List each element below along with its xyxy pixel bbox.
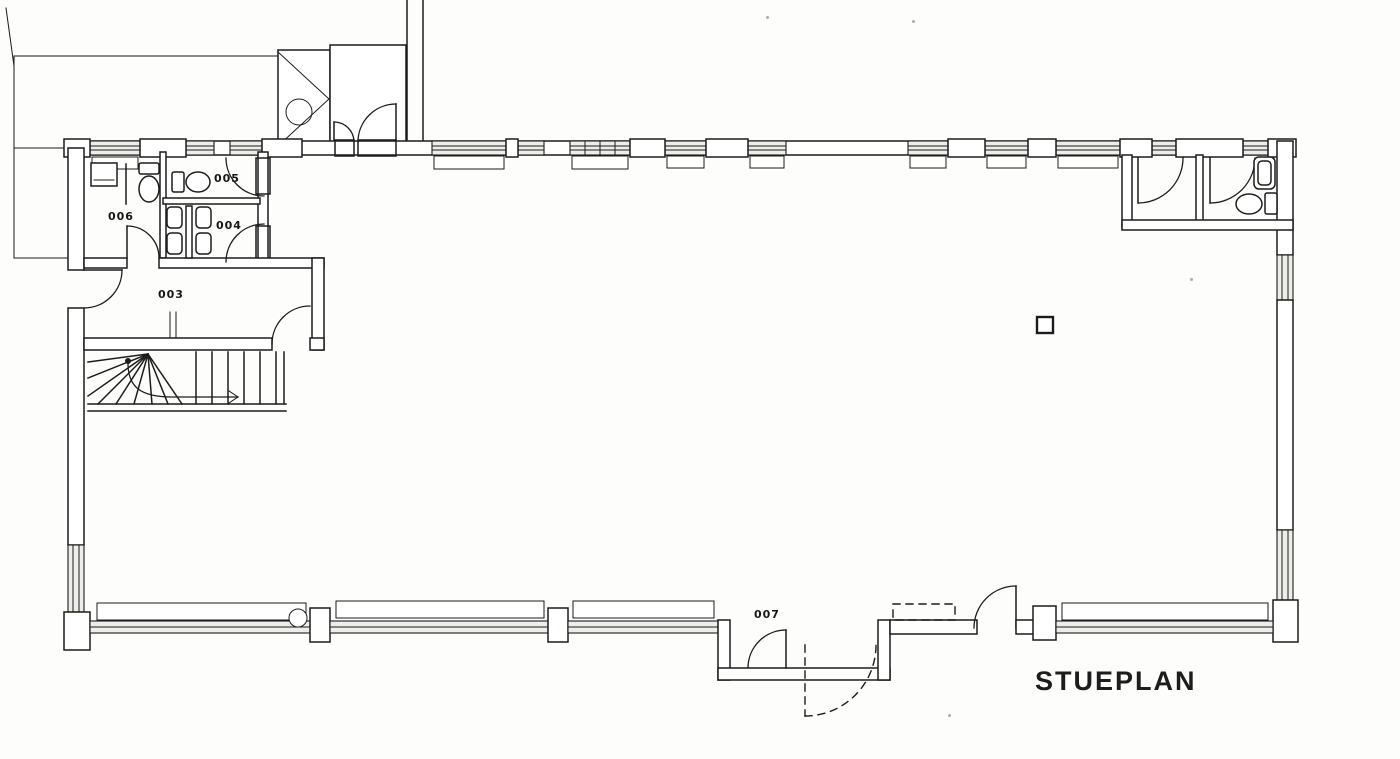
direction-arrow-icon <box>229 397 238 403</box>
flue-wall <box>407 0 423 142</box>
pier <box>1033 606 1056 640</box>
stair-treads <box>88 352 276 404</box>
room-label-005: 005 <box>214 172 240 185</box>
scan-speck <box>1190 278 1193 281</box>
floor-plan-canvas: 003 004 005 006 007 STUEPLAN <box>0 0 1400 759</box>
square-column-icon <box>1037 317 1053 333</box>
bottom-window-3 <box>568 601 718 633</box>
floor-plan-drawing <box>0 0 1400 759</box>
urinal-icon <box>167 207 182 228</box>
top-wall-sills <box>92 156 1118 169</box>
bottom-window-2 <box>330 601 548 633</box>
door-003 <box>272 306 310 344</box>
round-column-icon <box>289 609 307 627</box>
corner-pier <box>64 612 90 650</box>
pier <box>310 608 330 642</box>
edge-cut-line <box>6 8 14 66</box>
sink-icon <box>1254 157 1275 189</box>
urinal-icon <box>196 233 211 254</box>
annex-lobby-room <box>330 45 406 142</box>
bottom-wall-door <box>974 586 1016 628</box>
room-label-007: 007 <box>754 608 780 621</box>
room-block <box>84 152 324 350</box>
stairs <box>88 352 286 411</box>
left-wall-window <box>68 545 84 612</box>
hatched-area-left-strip <box>14 148 68 258</box>
door-swing-icon <box>974 586 1016 628</box>
toilet-rooms <box>1122 155 1293 230</box>
right-wall-window-lower <box>1277 530 1293 600</box>
urinal-group <box>167 206 211 258</box>
toilet-icon <box>139 163 159 202</box>
right-wall <box>1273 141 1298 642</box>
urinal-icon <box>196 207 211 228</box>
corner-pier <box>1273 600 1298 642</box>
left-wall <box>64 148 122 650</box>
top-wall <box>64 139 1296 169</box>
urinal-icon <box>167 233 182 254</box>
door-swing-icon <box>84 270 122 308</box>
right-wall-window-upper <box>1277 255 1293 300</box>
scan-speck <box>766 16 769 19</box>
door-swing-icon <box>127 226 159 258</box>
room-label-006: 006 <box>108 210 134 223</box>
toilet-icon <box>1236 193 1277 214</box>
door-toilet-left <box>1138 158 1183 203</box>
shower-room <box>278 50 330 148</box>
bottom-window-1 <box>90 603 312 633</box>
hatched-area <box>14 56 278 148</box>
door-006 <box>127 226 159 258</box>
entrance-vestibule <box>718 620 890 716</box>
door-swing-icon <box>748 630 786 668</box>
sink-icon <box>91 163 117 186</box>
direction-arrow-icon <box>229 391 238 397</box>
room-label-004: 004 <box>216 219 242 232</box>
room-label-003: 003 <box>158 288 184 301</box>
plan-title: STUEPLAN <box>1035 666 1197 697</box>
scan-speck <box>948 714 951 717</box>
pier <box>548 608 568 642</box>
door-swing-icon <box>272 306 310 344</box>
door-swing-icon <box>1138 158 1183 203</box>
toilet-icon <box>172 172 210 192</box>
scan-speck <box>912 20 915 23</box>
bottom-window-4 <box>1056 603 1273 633</box>
dashed-mat <box>893 604 955 620</box>
